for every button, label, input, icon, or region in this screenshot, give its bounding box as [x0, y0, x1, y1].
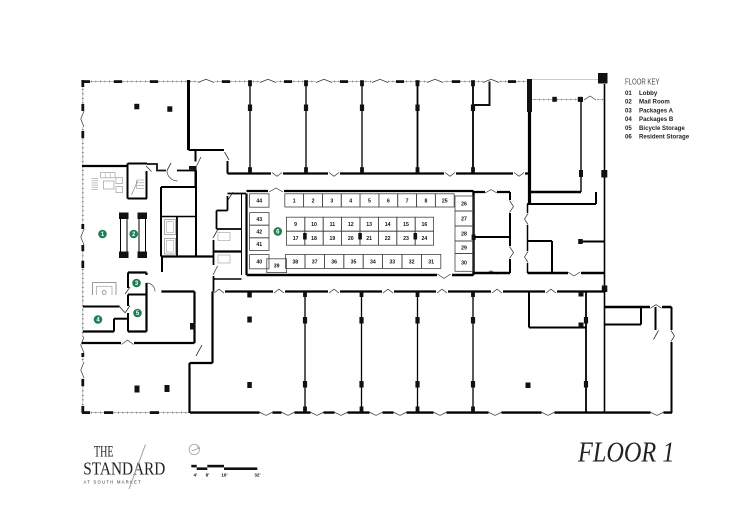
- svg-text:28: 28: [461, 232, 467, 238]
- svg-text:16: 16: [422, 222, 428, 228]
- svg-text:13: 13: [366, 222, 372, 228]
- svg-text:15: 15: [403, 222, 409, 228]
- svg-text:18: 18: [311, 236, 317, 242]
- svg-text:4’: 4’: [194, 473, 198, 478]
- svg-text:41: 41: [256, 242, 262, 248]
- svg-text:02: 02: [625, 99, 632, 106]
- svg-text:05: 05: [625, 125, 632, 132]
- svg-text:Lobby: Lobby: [639, 90, 658, 97]
- svg-text:FLOOR KEY: FLOOR KEY: [625, 78, 660, 87]
- svg-text:34: 34: [370, 259, 376, 265]
- svg-text:39: 39: [274, 264, 280, 270]
- svg-text:32: 32: [409, 259, 415, 265]
- svg-text:35: 35: [351, 259, 357, 265]
- svg-text:20: 20: [348, 236, 354, 242]
- svg-text:29: 29: [461, 245, 467, 251]
- svg-text:03: 03: [625, 107, 632, 114]
- svg-text:Mail Room: Mail Room: [639, 99, 670, 106]
- svg-text:Packages B: Packages B: [639, 116, 674, 123]
- svg-text:38: 38: [292, 259, 298, 265]
- svg-text:26: 26: [461, 202, 467, 208]
- svg-text:36: 36: [331, 259, 337, 265]
- svg-text:AT SOUTH MARKET: AT SOUTH MARKET: [84, 480, 142, 485]
- svg-text:4: 4: [349, 198, 352, 204]
- svg-text:25: 25: [442, 198, 448, 204]
- svg-text:11: 11: [330, 222, 336, 228]
- svg-text:32’: 32’: [254, 473, 260, 478]
- svg-text:Bicycle Storage: Bicycle Storage: [639, 125, 685, 132]
- svg-text:8: 8: [425, 198, 428, 204]
- svg-text:9: 9: [294, 222, 297, 228]
- svg-text:FLOOR 1: FLOOR 1: [577, 438, 674, 469]
- svg-text:10: 10: [311, 222, 317, 228]
- svg-text:12: 12: [348, 222, 354, 228]
- svg-text:6: 6: [387, 198, 390, 204]
- svg-text:37: 37: [312, 259, 318, 265]
- svg-text:2: 2: [312, 198, 315, 204]
- svg-text:Packages A: Packages A: [639, 107, 674, 114]
- svg-text:8’: 8’: [206, 473, 210, 478]
- svg-text:44: 44: [256, 199, 262, 205]
- svg-text:33: 33: [389, 259, 395, 265]
- svg-text:14: 14: [385, 222, 391, 228]
- svg-text:40: 40: [256, 260, 262, 266]
- svg-text:Resident Storage: Resident Storage: [639, 134, 690, 141]
- svg-text:23: 23: [403, 236, 409, 242]
- svg-text:27: 27: [461, 217, 467, 223]
- svg-text:1: 1: [293, 198, 296, 204]
- svg-text:43: 43: [256, 217, 262, 223]
- svg-text:7: 7: [406, 198, 409, 204]
- svg-text:30: 30: [461, 260, 467, 266]
- svg-text:5: 5: [368, 198, 371, 204]
- svg-text:17: 17: [293, 236, 299, 242]
- svg-text:06: 06: [625, 134, 632, 141]
- svg-text:3: 3: [330, 198, 333, 204]
- svg-text:04: 04: [625, 116, 632, 123]
- svg-text:21: 21: [366, 236, 372, 242]
- svg-text:01: 01: [625, 90, 632, 97]
- svg-text:42: 42: [256, 230, 262, 236]
- svg-text:16’: 16’: [221, 473, 227, 478]
- svg-text:24: 24: [422, 236, 428, 242]
- svg-text:STANDARD: STANDARD: [83, 459, 165, 479]
- svg-text:31: 31: [428, 259, 434, 265]
- svg-text:19: 19: [330, 236, 336, 242]
- svg-text:22: 22: [385, 236, 391, 242]
